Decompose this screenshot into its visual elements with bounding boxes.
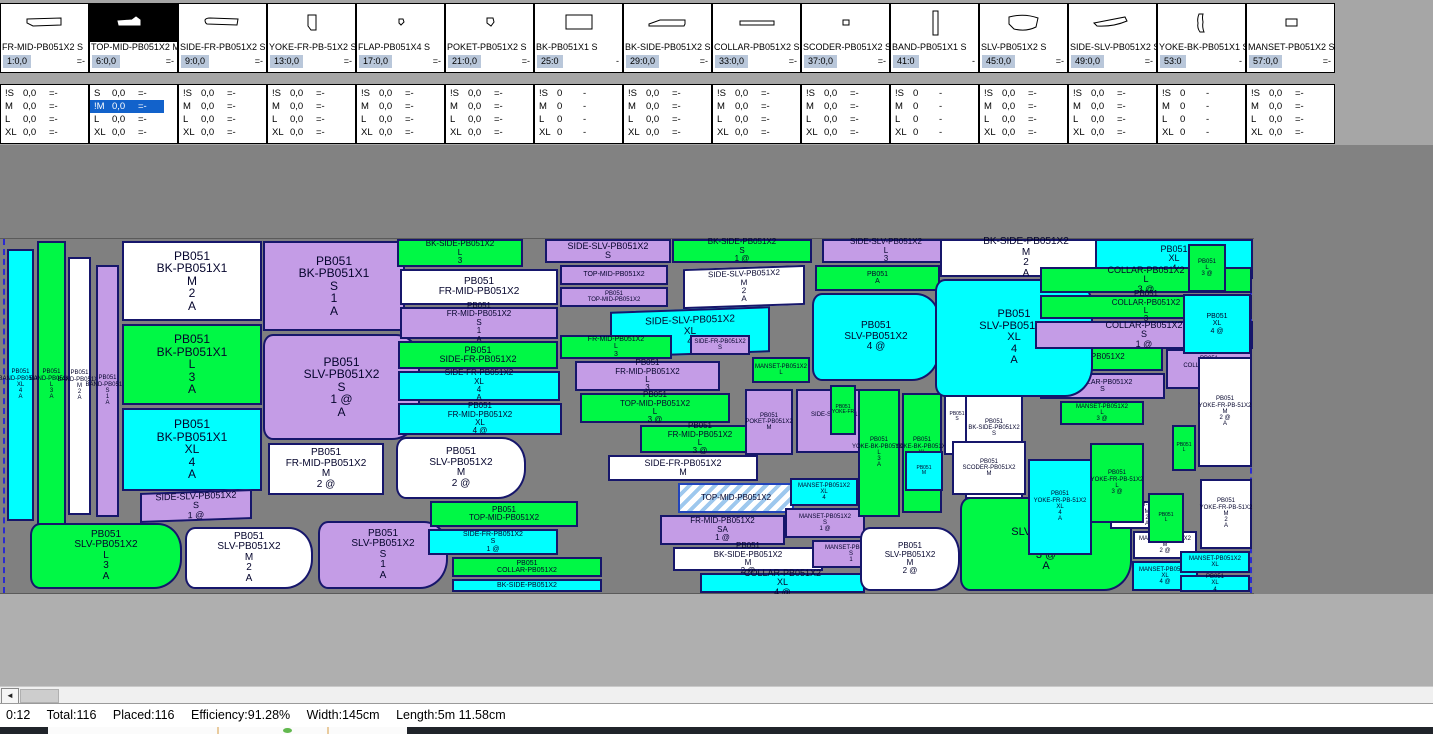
piece-qty-value[interactable]: 37:0,0 xyxy=(804,55,837,68)
fr-mid-piece-icon xyxy=(1,4,88,42)
marker-workspace[interactable]: PB051BAND-PB051X1XL4APB051BAND-PB051X1L3… xyxy=(0,145,1433,686)
size-row[interactable]: L0,0=- xyxy=(357,113,444,126)
background-window-sliver xyxy=(48,727,407,734)
size-panel-cell: !S0,0=-M0,0=-L0,0=-XL0,0=- xyxy=(801,84,890,144)
piece-name: BAND-PB051X1 S xyxy=(891,42,978,53)
size-panel-cell: !S0,0=-M0,0=-L0,0=-XL0,0=- xyxy=(178,84,267,144)
app-icon-dot xyxy=(283,728,292,733)
piece-qty-tail: =- xyxy=(1145,55,1153,68)
piece-qty-tail: =- xyxy=(77,55,85,68)
size-panel-cell: !S0,0=-M0,0=-L0,0=-XL0,0=- xyxy=(623,84,712,144)
size-row-selected[interactable]: !M0,0=- xyxy=(90,100,164,113)
size-row[interactable]: XL0,0=- xyxy=(90,126,177,139)
size-row[interactable]: L0,0=- xyxy=(980,113,1067,126)
pattern-piece[interactable]: PB051BAND-PB051X1S1A xyxy=(96,265,119,517)
window-divider-line xyxy=(327,727,329,734)
size-row[interactable]: S0,0=- xyxy=(90,87,177,100)
bk-side-piece-icon xyxy=(624,4,711,42)
size-row[interactable]: XL0,0=- xyxy=(268,126,355,139)
pattern-piece[interactable]: COLLAR-PB051X2XL4 @ xyxy=(700,573,865,593)
size-row[interactable]: M0,0=- xyxy=(980,100,1067,113)
piece-name: SCODER-PB051X2 S xyxy=(802,42,889,53)
scroll-left-arrow-icon[interactable]: ◄ xyxy=(1,688,19,704)
size-row[interactable]: L0,0=- xyxy=(446,113,533,126)
size-row[interactable]: L0- xyxy=(535,113,622,126)
piece-qty-row: 9:0,0 =- xyxy=(179,55,266,68)
pattern-piece[interactable]: PB051BAND-PB051X1L3A xyxy=(37,241,66,529)
piece-qty-row: 25:0 - xyxy=(535,55,622,68)
size-row[interactable]: XL0,0=- xyxy=(713,126,800,139)
pattern-piece[interactable]: PB051A xyxy=(815,265,940,291)
size-row[interactable]: L0,0=- xyxy=(802,113,889,126)
piece-qty-value[interactable]: 49:0,0 xyxy=(1071,55,1104,68)
size-panel-cell: !S0-M0-L0-XL0- xyxy=(890,84,979,144)
size-row[interactable]: !S0,0=- xyxy=(1,87,88,100)
size-row[interactable]: M0,0=- xyxy=(624,100,711,113)
pattern-piece[interactable]: PB051FR-MID-PB051X2 xyxy=(400,269,558,305)
pattern-piece[interactable]: PB051SLV-PB051X24 @ xyxy=(812,293,940,381)
pattern-piece[interactable]: PB051L xyxy=(1172,425,1196,471)
slv-piece-icon xyxy=(980,4,1067,42)
size-panel-cell: S0,0=-!M0,0=-L0,0=-XL0,0=- xyxy=(89,84,178,144)
piece-qty-tail: =- xyxy=(789,55,797,68)
piece-qty-value[interactable]: 41:0 xyxy=(893,55,919,68)
status-length: Length:5m 11.58cm xyxy=(396,708,506,722)
piece-qty-tail: =- xyxy=(255,55,263,68)
size-row[interactable]: !S0,0=- xyxy=(624,87,711,100)
piece-qty-tail: - xyxy=(616,55,619,68)
pattern-piece[interactable]: PB051YOKE-BK-PB051X1L3A xyxy=(858,389,900,517)
piece-qty-row: 13:0,0 =- xyxy=(268,55,355,68)
pattern-piece[interactable]: PB051FR-MID-PB051X2L3 @ xyxy=(640,425,760,453)
pattern-piece[interactable]: SIDE-FR-PB051X2S1 @ xyxy=(428,529,558,555)
pattern-piece[interactable]: SIDE-SLV-PB051X2S xyxy=(545,239,671,263)
band-piece-icon xyxy=(891,4,978,42)
below-marker-area xyxy=(0,594,1433,686)
size-row[interactable]: !S0,0=- xyxy=(713,87,800,100)
pattern-piece[interactable]: PB051SLV-PB051X2L3A xyxy=(30,523,182,589)
piece-name: COLLAR-PB051X2 S xyxy=(713,42,800,53)
piece-qty-tail: =- xyxy=(433,55,441,68)
toolbar-piece-cell[interactable]: FLAP-PB051X4 S 17:0,0 =- xyxy=(356,3,445,73)
pattern-piece[interactable]: MANSET-PB051X2L3 @ xyxy=(1060,401,1144,425)
piece-name: SIDE-SLV-PB051X2 S xyxy=(1069,42,1156,53)
pattern-piece[interactable]: BK-SIDE-PB051X2L3 xyxy=(397,239,523,267)
size-row[interactable]: !S0,0=- xyxy=(357,87,444,100)
size-row[interactable]: !S0,0=- xyxy=(446,87,533,100)
status-placed: Placed:116 xyxy=(113,708,175,722)
size-row[interactable]: L0,0=- xyxy=(624,113,711,126)
size-panel-cell: !S0-M0-L0-XL0- xyxy=(534,84,623,144)
toolbar-piece-cell[interactable]: BAND-PB051X1 S 41:0 - xyxy=(890,3,979,73)
pattern-piece[interactable]: MANSET-PB051X2L xyxy=(752,357,810,383)
pattern-piece[interactable]: TOP-MID-PB051X2 xyxy=(560,265,668,285)
pattern-piece[interactable]: PB051BK-PB051X1S1A xyxy=(263,241,405,331)
size-row[interactable]: XL0,0=- xyxy=(624,126,711,139)
size-row[interactable]: XL0,0=- xyxy=(802,126,889,139)
piece-qty-row: 33:0,0 =- xyxy=(713,55,800,68)
piece-qty-tail: =- xyxy=(878,55,886,68)
piece-name: POKET-PB051X2 S xyxy=(446,42,533,53)
pattern-piece[interactable]: PB051YOKE-FR xyxy=(830,385,856,435)
piece-qty-tail: - xyxy=(972,55,975,68)
pattern-piece[interactable]: PB051SCODER-PB051X2M xyxy=(952,441,1026,495)
pattern-piece[interactable]: PB051SIDE-FR-PB051X2 xyxy=(398,341,558,369)
size-panel-cell: !S0-M0-L0-XL0- xyxy=(1157,84,1246,144)
piece-qty-value[interactable]: 33:0,0 xyxy=(715,55,748,68)
size-panel-cell: !S0,0=-M0,0=-L0,0=-XL0,0=- xyxy=(712,84,801,144)
pattern-piece[interactable]: SIDE-FR-PB051X2S xyxy=(690,335,750,355)
piece-name: BK-SIDE-PB051X2 S xyxy=(624,42,711,53)
pattern-piece[interactable]: PB051TOP-MID-PB051X2L3 @ xyxy=(580,393,730,423)
collar-piece-icon xyxy=(713,4,800,42)
piece-qty-tail: =- xyxy=(1056,55,1064,68)
pattern-piece[interactable]: PB051TOP-MID-PB051X2 xyxy=(560,287,668,307)
size-row[interactable]: XL0- xyxy=(535,126,622,139)
toolbar-piece-cell[interactable]: TOP-MID-PB051X2 M 6:0,0 =- xyxy=(89,3,178,73)
size-row[interactable]: XL0,0=- xyxy=(1069,126,1156,139)
piece-qty-tail: - xyxy=(1239,55,1242,68)
pattern-piece[interactable]: FR-MID-PB051X2L3 xyxy=(560,335,672,359)
scoder-piece-icon xyxy=(802,4,889,42)
piece-qty-row: 41:0 - xyxy=(891,55,978,68)
side-fr-piece-icon xyxy=(179,4,266,42)
size-row[interactable]: M0,0=- xyxy=(179,100,266,113)
toolbar-piece-cell[interactable]: YOKE-FR-PB-51X2 S 13:0,0 =- xyxy=(267,3,356,73)
size-row[interactable]: L0- xyxy=(891,113,978,126)
pattern-piece[interactable]: FR-MID-PB051X2SA1 @ xyxy=(660,515,785,545)
piece-name: FR-MID-PB051X2 S xyxy=(1,42,88,53)
size-panel-cell: !S0,0=-M0,0=-L0,0=-XL0,0=- xyxy=(979,84,1068,144)
size-row[interactable]: M0,0=- xyxy=(357,100,444,113)
piece-qty-value[interactable]: 13:0,0 xyxy=(270,55,303,68)
piece-name: YOKE-BK-PB051X1 S xyxy=(1158,42,1245,53)
size-row[interactable]: !S0,0=- xyxy=(1069,87,1156,100)
piece-name: YOKE-FR-PB-51X2 S xyxy=(268,42,355,53)
size-panel-cell: !S0,0=-M0,0=-L0,0=-XL0,0=- xyxy=(1068,84,1157,144)
piece-qty-row: 29:0,0 =- xyxy=(624,55,711,68)
piece-qty-value[interactable]: 25:0 xyxy=(537,55,563,68)
size-row[interactable]: M0,0=- xyxy=(713,100,800,113)
piece-qty-value[interactable]: 45:0,0 xyxy=(982,55,1015,68)
pattern-piece[interactable]: SIDE-SLV-PB051X2L3 xyxy=(822,239,950,263)
piece-qty-value[interactable]: 53:0 xyxy=(1160,55,1186,68)
toolbar-piece-cell[interactable]: MANSET-PB051X2 S 57:0,0 =- xyxy=(1246,3,1335,73)
piece-qty-row: 45:0,0 =- xyxy=(980,55,1067,68)
toolbar-piece-cell[interactable]: SIDE-FR-PB051X2 S 9:0,0 =- xyxy=(178,3,267,73)
toolbar-piece-cell[interactable]: BK-SIDE-PB051X2 S 29:0,0 =- xyxy=(623,3,712,73)
status-bar: 0:12 Total:116 Placed:116 Efficiency:91.… xyxy=(0,703,1433,727)
piece-qty-row: 49:0,0 =- xyxy=(1069,55,1156,68)
piece-name: SIDE-FR-PB051X2 S xyxy=(179,42,266,53)
size-row[interactable]: !S0- xyxy=(535,87,622,100)
piece-qty-tail: =- xyxy=(166,55,174,68)
size-row[interactable]: M0- xyxy=(891,100,978,113)
piece-qty-value[interactable]: 9:0,0 xyxy=(181,55,209,68)
taskbar-sliver xyxy=(0,727,1433,734)
size-row[interactable]: XL0,0=- xyxy=(357,126,444,139)
yoke-fr-piece-icon xyxy=(268,4,355,42)
pattern-piece[interactable]: BK-SIDE-PB051X2 xyxy=(452,579,602,592)
scrollbar-thumb[interactable] xyxy=(20,689,59,703)
pattern-piece[interactable]: PB051POKET-PB051X2M xyxy=(745,389,793,455)
size-row[interactable]: XL0,0=- xyxy=(179,126,266,139)
piece-qty-row: 6:0,0 =- xyxy=(90,55,177,68)
pattern-piece[interactable]: PB051M xyxy=(905,451,943,491)
size-row[interactable]: M0,0=- xyxy=(802,100,889,113)
toolbar-piece-cell[interactable]: FR-MID-PB051X2 S 1:0,0 =- xyxy=(0,3,89,73)
size-row[interactable]: !S0,0=- xyxy=(980,87,1067,100)
size-row[interactable]: M0,0=- xyxy=(268,100,355,113)
size-row[interactable]: XL0,0=- xyxy=(980,126,1067,139)
pattern-piece[interactable]: MANSET-PB051X2XL4 xyxy=(790,478,858,506)
size-row[interactable]: !S0,0=- xyxy=(179,87,266,100)
size-row[interactable]: L0,0=- xyxy=(713,113,800,126)
pattern-piece[interactable]: PB051XL4 @ xyxy=(1183,294,1251,354)
toolbar-piece-cell[interactable]: YOKE-BK-PB051X1 S 53:0 - xyxy=(1157,3,1246,73)
pattern-piece[interactable]: PB051L xyxy=(1148,493,1184,543)
size-panel-cell: !S0,0=-M0,0=-L0,0=-XL0,0=- xyxy=(445,84,534,144)
pattern-piece[interactable]: PB051FR-MID-PB051X2M2 @ xyxy=(268,443,384,495)
pattern-piece[interactable]: MANSET-PB051X2S1 @ xyxy=(785,508,865,538)
size-panel-cell: !S0,0=-M0,0=-L0,0=-XL0,0=- xyxy=(356,84,445,144)
size-panel-cell: !S0,0=-M0,0=-L0,0=-XL0,0=- xyxy=(267,84,356,144)
size-row[interactable]: L0,0=- xyxy=(268,113,355,126)
size-row[interactable]: L0,0=- xyxy=(1247,113,1334,126)
pattern-piece[interactable]: PB051SLV-PB051X2M2 @ xyxy=(396,437,526,499)
horizontal-scrollbar[interactable]: ◄ xyxy=(0,686,1433,703)
piece-qty-value[interactable]: 17:0,0 xyxy=(359,55,392,68)
pattern-piece[interactable]: PB051YOKE-FR-PB-51X2M2 @A xyxy=(1198,357,1252,467)
piece-qty-tail: =- xyxy=(1323,55,1331,68)
size-row[interactable]: L0- xyxy=(1158,113,1245,126)
size-row[interactable]: !S0,0=- xyxy=(268,87,355,100)
toolbar-piece-cell[interactable]: BK-PB051X1 S 25:0 - xyxy=(534,3,623,73)
piece-name: SLV-PB051X2 S xyxy=(980,42,1067,53)
yoke-bk-piece-icon xyxy=(1158,4,1245,42)
size-row[interactable]: M0- xyxy=(1158,100,1245,113)
size-row[interactable]: !S0,0=- xyxy=(1247,87,1334,100)
pattern-piece[interactable]: PB051YOKE-FR-PB-51X2L3 @ xyxy=(1090,443,1144,523)
size-row[interactable]: L0,0=- xyxy=(1,113,88,126)
toolbar-piece-cell[interactable]: SIDE-SLV-PB051X2 S 49:0,0 =- xyxy=(1068,3,1157,73)
piece-qty-value[interactable]: 6:0,0 xyxy=(92,55,120,68)
status-total: Total:116 xyxy=(47,708,97,722)
toolbar-piece-cell[interactable]: SCODER-PB051X2 S 37:0,0 =- xyxy=(801,3,890,73)
manset-piece-icon xyxy=(1247,4,1334,42)
marker-application-window: FR-MID-PB051X2 S 1:0,0 =- TOP-MID-PB051X… xyxy=(0,0,1433,734)
size-row[interactable]: XL0,0=- xyxy=(446,126,533,139)
piece-qty-row: 1:0,0 =- xyxy=(1,55,88,68)
pattern-piece[interactable]: PB051YOKE-FR-PB-51X2XL4A xyxy=(1028,459,1092,555)
pattern-piece[interactable]: MANSET-PB051X2XL xyxy=(1180,551,1250,573)
size-row[interactable]: XL0- xyxy=(891,126,978,139)
size-row[interactable]: M0,0=- xyxy=(1069,100,1156,113)
pattern-piece[interactable]: PB051FR-MID-PB051X2S1A xyxy=(400,307,558,339)
pattern-piece[interactable]: BK-SIDE-PB051X2S1 @ xyxy=(672,239,812,263)
piece-qty-value[interactable]: 21:0,0 xyxy=(448,55,481,68)
toolbar-piece-cell[interactable]: COLLAR-PB051X2 S 33:0,0 =- xyxy=(712,3,801,73)
top-mid-piece-icon xyxy=(90,4,177,42)
piece-name: BK-PB051X1 S xyxy=(535,42,622,53)
pattern-piece[interactable]: PB051YOKE-FR-PB-51X2M2A xyxy=(1200,479,1252,549)
marker-canvas[interactable]: PB051BAND-PB051X1XL4APB051BAND-PB051X1L3… xyxy=(0,238,1254,594)
piece-qty-tail: =- xyxy=(344,55,352,68)
pattern-piece[interactable]: PB051TOP-MID-PB051X2 xyxy=(430,501,578,527)
status-width: Width:145cm xyxy=(307,708,380,722)
size-row[interactable]: !S0- xyxy=(1158,87,1245,100)
status-efficiency: Efficiency:91.28% xyxy=(191,708,290,722)
pattern-piece[interactable]: PB051BAND-PB051X1XL4A xyxy=(7,249,34,521)
pattern-piece[interactable]: PB051BK-PB051X1M2A xyxy=(122,241,262,321)
piece-name: FLAP-PB051X4 S xyxy=(357,42,444,53)
size-row[interactable]: XL0,0=- xyxy=(1,126,88,139)
piece-qty-row: 57:0,0 =- xyxy=(1247,55,1334,68)
size-panel-cell: !S0,0=-M0,0=-L0,0=-XL0,0=- xyxy=(1246,84,1335,144)
pattern-piece[interactable]: PB051BK-PB051X1XL4A xyxy=(122,408,262,491)
pattern-piece-selected[interactable]: TOP-MID-PB051X2 xyxy=(678,483,794,513)
piece-qty-row: 17:0,0 =- xyxy=(357,55,444,68)
size-row[interactable]: M0,0=- xyxy=(1,100,88,113)
piece-qty-tail: =- xyxy=(522,55,530,68)
pattern-piece[interactable]: SIDE-FR-PB051X2M xyxy=(608,455,758,481)
window-divider-line xyxy=(217,727,219,734)
pattern-piece[interactable]: PB051XL4 xyxy=(1180,575,1250,592)
pattern-piece[interactable]: PB051SLV-PB051X2M2 @ xyxy=(860,527,960,591)
piece-qty-tail: =- xyxy=(700,55,708,68)
piece-qty-value[interactable]: 29:0,0 xyxy=(626,55,659,68)
status-time: 0:12 xyxy=(6,708,30,722)
piece-name: TOP-MID-PB051X2 M xyxy=(90,42,177,53)
flap-piece-icon xyxy=(357,4,444,42)
size-row[interactable]: L0,0=- xyxy=(90,113,177,126)
bk-piece-icon xyxy=(535,4,622,42)
size-row[interactable]: !S0- xyxy=(891,87,978,100)
piece-qty-value[interactable]: 1:0,0 xyxy=(3,55,31,68)
pattern-piece[interactable]: PB051L3 @ xyxy=(1188,244,1226,292)
size-row[interactable]: M0- xyxy=(535,100,622,113)
pattern-piece[interactable]: PB051COLLAR-PB051X2 xyxy=(452,557,602,577)
side-slv-piece-icon xyxy=(1069,4,1156,42)
piece-qty-row: 37:0,0 =- xyxy=(802,55,889,68)
pattern-piece[interactable]: SIDE-FR-PB051X2XL4A xyxy=(398,371,560,401)
pattern-piece[interactable]: SIDE-SLV-PB051X2S1 @ xyxy=(140,489,252,523)
pattern-piece[interactable]: PB051FR-MID-PB051X2L3 xyxy=(575,361,720,391)
size-panel-cell: !S0,0=-M0,0=-L0,0=-XL0,0=- xyxy=(0,84,89,144)
pattern-piece[interactable]: PB051FR-MID-PB051X2XL4 @ xyxy=(398,403,562,435)
poket-piece-icon xyxy=(446,4,533,42)
pattern-piece[interactable]: PB051SLV-PB051X2M2A xyxy=(185,527,313,589)
marker-left-boundary xyxy=(3,239,5,593)
piece-qty-row: 21:0,0 =- xyxy=(446,55,533,68)
pattern-piece[interactable]: SIDE-SLV-PB051X2M2A xyxy=(683,265,805,309)
pattern-piece[interactable]: PB051BK-PB051X1L3A xyxy=(122,324,262,405)
toolbar-piece-cell[interactable]: POKET-PB051X2 S 21:0,0 =- xyxy=(445,3,534,73)
piece-qty-value[interactable]: 57:0,0 xyxy=(1249,55,1282,68)
size-row[interactable]: M0,0=- xyxy=(1247,100,1334,113)
size-row[interactable]: !S0,0=- xyxy=(802,87,889,100)
size-row[interactable]: M0,0=- xyxy=(446,100,533,113)
size-row[interactable]: XL0- xyxy=(1158,126,1245,139)
size-row[interactable]: XL0,0=- xyxy=(1247,126,1334,139)
toolbar-piece-cell[interactable]: SLV-PB051X2 S 45:0,0 =- xyxy=(979,3,1068,73)
size-row[interactable]: L0,0=- xyxy=(1069,113,1156,126)
pattern-piece[interactable]: PB051SLV-PB051X2S1 @A xyxy=(263,334,420,440)
piece-name: MANSET-PB051X2 S xyxy=(1247,42,1334,53)
size-row[interactable]: L0,0=- xyxy=(179,113,266,126)
piece-qty-row: 53:0 - xyxy=(1158,55,1245,68)
